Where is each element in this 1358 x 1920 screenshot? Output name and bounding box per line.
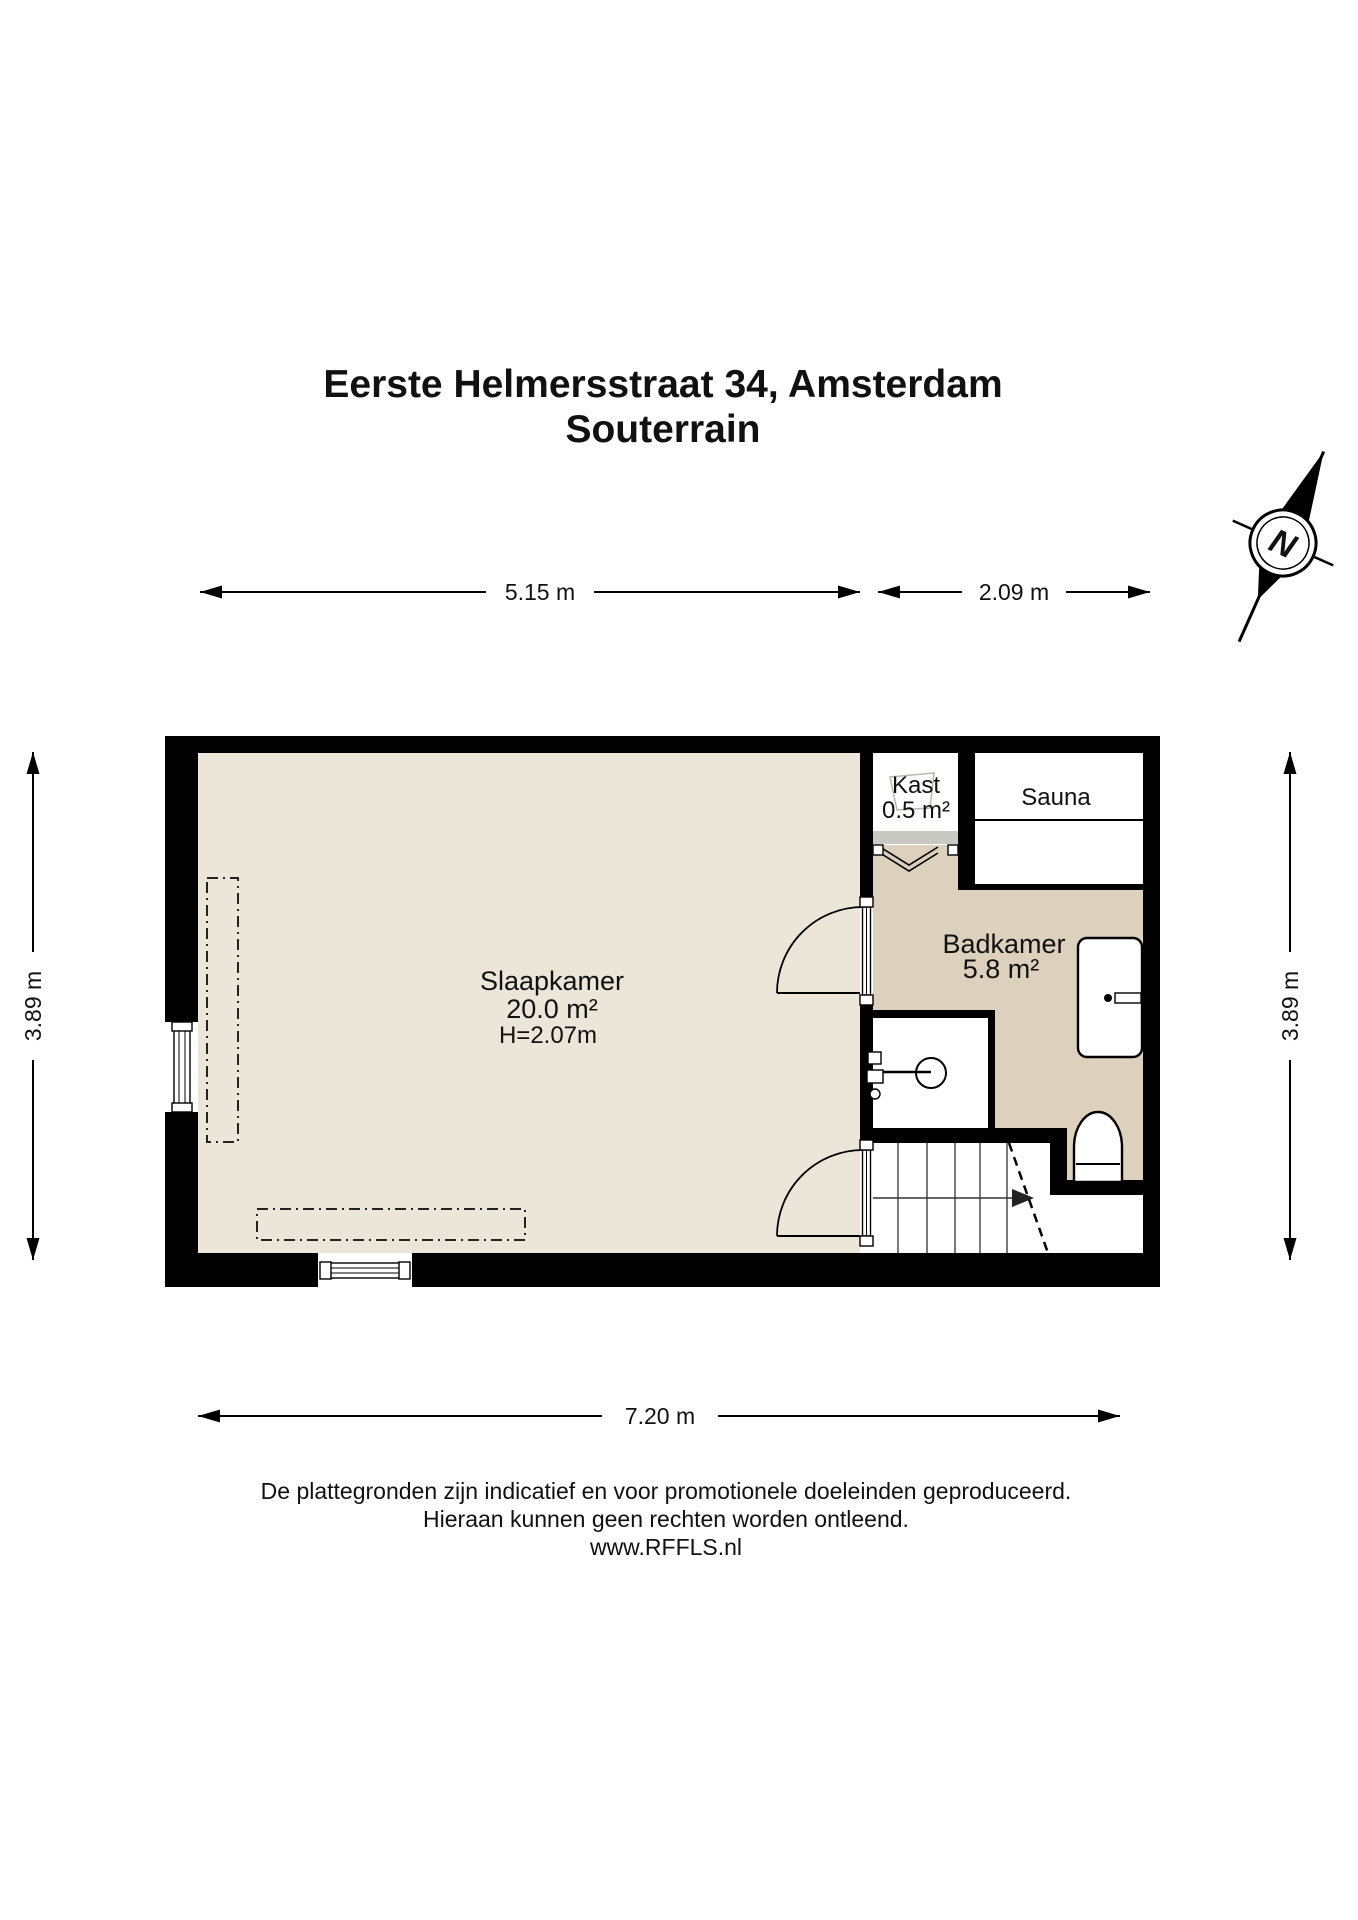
dimension-top-right: 2.09 m <box>878 577 1150 607</box>
shower-unit <box>1078 938 1142 1057</box>
footer-disclaimer-line1: De plattegronden zijn indicatief en voor… <box>261 1478 1072 1504</box>
footer-disclaimer-line2: Hieraan kunnen geen rechten worden ontle… <box>423 1506 909 1532</box>
door2-frame-top <box>860 1140 873 1150</box>
window-bottom-cap-right <box>399 1262 410 1279</box>
floorplan-page: Eerste Helmersstraat 34, Amsterdam Soute… <box>0 0 1358 1920</box>
slaapkamer-area: 20.0 m² <box>506 994 598 1024</box>
tap-handle-bottom <box>870 1089 880 1099</box>
wall-washbasin-top <box>860 1010 995 1018</box>
door1-frame-top <box>860 897 873 907</box>
dimension-left-value: 3.89 m <box>20 971 46 1041</box>
wall-bottom-left <box>165 1253 318 1287</box>
dimension-left: 3.89 m <box>19 752 47 1260</box>
arrow-right-icon <box>1128 586 1150 599</box>
page-subtitle: Souterrain <box>565 408 760 451</box>
wall-right <box>1143 736 1160 1287</box>
wall-sauna-bottom <box>975 884 1143 890</box>
slaapkamer-label: Slaapkamer <box>480 966 624 996</box>
kast-door-sill <box>873 831 958 844</box>
page-title: Eerste Helmersstraat 34, Amsterdam <box>323 363 1002 406</box>
dimension-top-left: 5.15 m <box>200 577 860 607</box>
tap-handle-top <box>868 1052 881 1064</box>
window-bottom-glass <box>330 1263 400 1278</box>
floorplan-canvas: Eerste Helmersstraat 34, Amsterdam Soute… <box>0 0 1358 1920</box>
dimension-bottom: 7.20 m <box>198 1401 1120 1431</box>
arrow-right-icon <box>838 586 860 599</box>
arrow-up-icon <box>27 752 40 774</box>
window-bottom-cap-left <box>320 1262 331 1279</box>
wall-washbasin-bottom <box>860 1128 1067 1143</box>
badkamer-area: 5.8 m² <box>963 954 1040 984</box>
wall-left-upper <box>165 736 198 1022</box>
sauna-floor <box>975 753 1143 884</box>
understairs-floor <box>1067 1195 1143 1253</box>
window-left-glass <box>174 1030 190 1104</box>
sauna-label: Sauna <box>1021 784 1091 811</box>
footer-website: www.RFFLS.nl <box>589 1534 742 1560</box>
arrow-down-icon <box>1284 1238 1297 1260</box>
wall-washbasin-right <box>988 1018 995 1128</box>
wall-top <box>165 736 1160 753</box>
wall-kast-sauna <box>958 753 975 890</box>
compass-north-icon: N <box>1189 429 1358 664</box>
toilet-bowl <box>1074 1112 1122 1182</box>
kast-door-hinge-left <box>873 845 883 855</box>
dimension-top-left-value: 5.15 m <box>505 579 575 605</box>
shower-handle <box>1115 993 1141 1003</box>
window-left <box>165 1022 198 1112</box>
kast-door-hinge-right <box>948 845 958 855</box>
toilet-fixture <box>1074 1112 1122 1182</box>
arrow-right-icon <box>1098 1410 1120 1423</box>
wall-bottom-right <box>412 1253 1160 1287</box>
tap-body <box>867 1070 883 1083</box>
arrow-left-icon <box>200 586 222 599</box>
arrow-left-icon <box>878 586 900 599</box>
window-bottom <box>318 1253 412 1287</box>
kast-label: Kast <box>892 772 940 799</box>
wall-partition-upper <box>860 753 873 897</box>
door1-frame-bottom <box>860 995 873 1005</box>
dimension-right-value: 3.89 m <box>1277 971 1303 1041</box>
slaapkamer-ceiling-height: H=2.07m <box>499 1022 597 1049</box>
arrow-down-icon <box>27 1238 40 1260</box>
kast-area: 0.5 m² <box>882 797 950 824</box>
dimension-top-right-value: 2.09 m <box>979 579 1049 605</box>
door2-frame-bottom <box>860 1236 873 1246</box>
shower-drain-dot <box>1104 994 1112 1002</box>
dimension-bottom-value: 7.20 m <box>625 1403 695 1429</box>
dimension-right: 3.89 m <box>1276 752 1304 1260</box>
arrow-up-icon <box>1284 752 1297 774</box>
window-left-cap-top <box>172 1022 192 1031</box>
arrow-left-icon <box>198 1410 220 1423</box>
window-left-cap-bottom <box>172 1103 192 1112</box>
